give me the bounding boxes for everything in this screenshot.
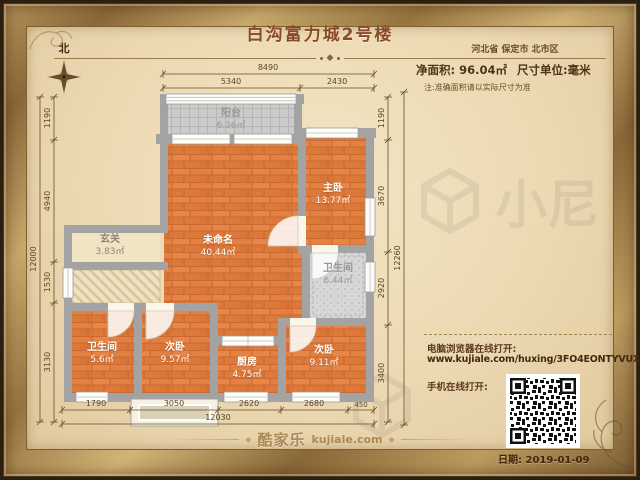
room-label-master: 主卧 13.77㎡: [316, 182, 351, 207]
dim-bottom-seg: 450: [354, 401, 367, 409]
compass-center: [62, 75, 65, 78]
dim-left-seg: 1190: [43, 108, 52, 128]
dim-right-seg: 3670: [377, 186, 386, 206]
dim-bottom-total: 12030: [205, 413, 230, 422]
dim-left-seg: 1530: [43, 272, 52, 292]
dim-top-total: 8490: [258, 63, 278, 72]
kitchen-sliding-door: [222, 336, 274, 346]
dim-left-seg: 4940: [43, 191, 52, 211]
brand-diamond-icon: ◆: [389, 435, 395, 444]
master-right-window: [365, 198, 375, 236]
entry-hatch-area: [72, 270, 160, 303]
dim-bottom-seg: 3050: [164, 399, 184, 408]
living-floor-ext: [218, 311, 278, 337]
room-label-bedroom2: 次卧 9.57㎡: [160, 341, 189, 366]
dim-right-seg: 2920: [377, 278, 386, 298]
dim-right-total: 12260: [393, 245, 402, 270]
dim-left-total: 12000: [29, 246, 38, 271]
brand-diamond-icon: ◆: [245, 435, 251, 444]
dim-bottom-seg: 2680: [304, 399, 324, 408]
brand-line-right: [401, 439, 471, 440]
balcony-top-window: [166, 94, 296, 104]
room-label-bedroom3: 次卧 9.11㎡: [309, 344, 338, 369]
date-label: 日期: 2019-01-09: [498, 451, 589, 466]
brand-domain: kujiale.com: [311, 433, 382, 446]
room-label-balcony: 阳台 6.36㎡: [216, 107, 245, 132]
floorplan-page: 小尼 白沟富力城2号楼 ◆ 河北省 保定市 北市区 净面积: 96.04㎡尺寸单…: [0, 0, 640, 480]
entry-left-window: [63, 268, 73, 298]
dim-right-seg: 1190: [377, 108, 386, 128]
room-label-bath-small: 卫生间 5.6㎡: [87, 341, 117, 366]
master-top-window: [306, 128, 358, 138]
room-label-entry: 玄关 3.83㎡: [95, 233, 124, 258]
dim-top-seg: 5340: [221, 77, 241, 86]
dim-bottom-seg: 2620: [239, 399, 259, 408]
room-label-living: 未命名 40.44㎡: [201, 234, 236, 259]
qr-code: [506, 374, 580, 448]
dim-left-seg: 3130: [43, 352, 52, 372]
dim-top-seg: 2430: [327, 77, 347, 86]
room-label-kitchen: 厨房 4.75㎡: [232, 356, 261, 381]
bath-main-right-window: [365, 262, 375, 292]
corner-flourish-icon: [28, 27, 74, 53]
brand-line-left: [169, 439, 239, 440]
dim-bottom-seg: 1790: [86, 399, 106, 408]
brand-name: 酷家乐: [257, 429, 305, 450]
dim-right-seg: 3400: [377, 363, 386, 383]
room-label-bath-main: 卫生间 6.44㎡: [323, 262, 353, 287]
